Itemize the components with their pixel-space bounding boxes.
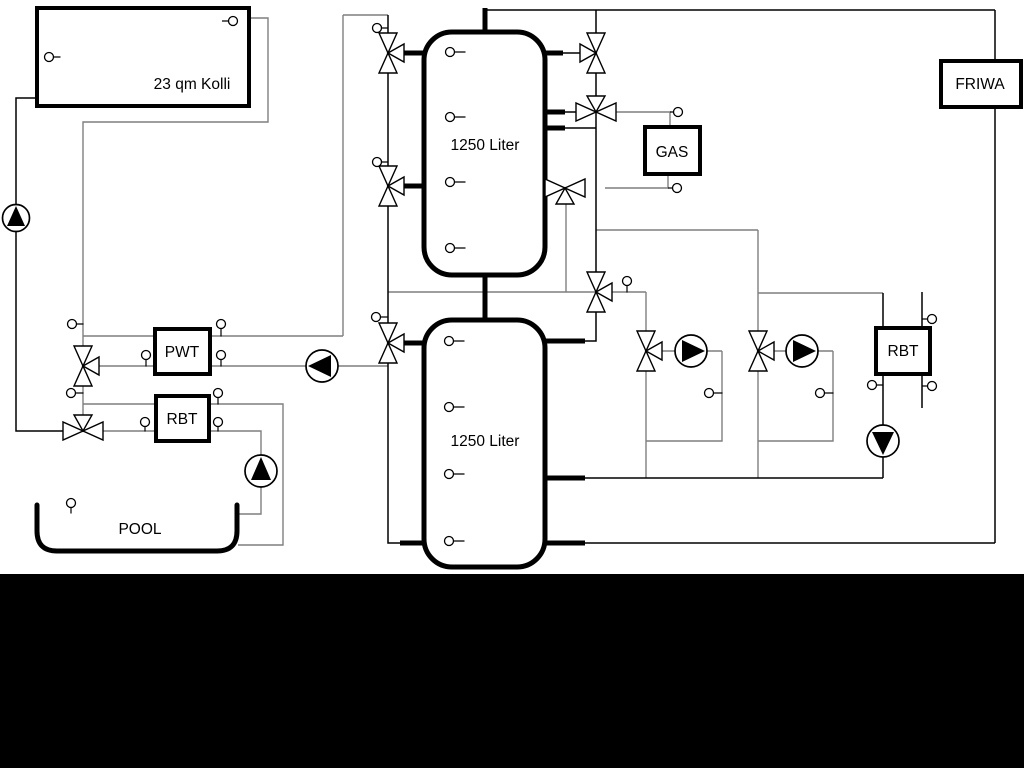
sensor-tank2-1-icon [445,337,454,346]
sensor-rbt-left-mid-icon [141,418,150,427]
rbt-right-heat-exchanger: RBT [876,328,930,374]
solar-collector-label: 23 qm Kolli [154,76,231,93]
pwt-label: PWT [165,344,200,361]
pump-pwt-icon [306,350,338,382]
rbt-right-label: RBT [888,343,920,360]
diagram-canvas: 23 qm Kolli 1250 Liter 1250 Liter GAS FR… [0,0,1024,768]
buffer-tank-top-label: 1250 Liter [451,137,520,154]
sensor-branch2-icon [816,389,825,398]
sensor-pwt-in-icon [68,320,77,329]
friwa-module: FRIWA [941,61,1021,107]
sensor-rbt-right-top-icon [928,315,937,324]
sensor-pwt-out-bottom-icon [217,351,226,360]
bottom-black-bar [0,574,1024,768]
sensor-manifold-mid-icon [373,158,382,167]
sensor-rbt-left-out-top-icon [214,389,223,398]
sensor-gas-return-icon [673,184,682,193]
sensor-manifold-top-icon [373,24,382,33]
sensor-collector-left-icon [45,53,54,62]
pool-label: POOL [118,521,161,538]
pump-pool-icon [245,455,277,487]
sensor-tank2-3-icon [445,470,454,479]
gas-boiler-label: GAS [656,144,689,161]
pump-rbt-right-icon [867,425,899,457]
sensor-rbt-right-bottom-icon [928,382,937,391]
sensor-branch1-icon [705,389,714,398]
sensor-manifold-low-icon [372,313,381,322]
sensor-rbt-left-in-icon [67,389,76,398]
buffer-tank-top: 1250 Liter [424,32,545,275]
sensor-rbt-left-out-bottom-icon [214,418,223,427]
rbt-left-label: RBT [167,411,199,428]
rbt-left-heat-exchanger: RBT [156,396,209,441]
pump-collector-icon [3,205,30,232]
pump-branch2-icon [786,335,818,367]
sensor-gas-flow-icon [674,108,683,117]
sensor-pool-icon [67,499,76,508]
sensor-tank1-1-icon [446,48,455,57]
sensor-tank1-3-icon [446,178,455,187]
sensor-rbt-right-primary-icon [868,381,877,390]
sensor-tank1-4-icon [446,244,455,253]
buffer-tank-bottom: 1250 Liter [424,320,545,567]
sensor-tank2-2-icon [445,403,454,412]
sensor-pwt-out-top-icon [217,320,226,329]
schematic-page: 23 qm Kolli 1250 Liter 1250 Liter GAS FR… [0,0,1024,768]
sensor-tank1-2-icon [446,113,455,122]
solar-collector: 23 qm Kolli [37,8,249,106]
friwa-label: FRIWA [955,76,1005,93]
sensor-pwt-left-icon [142,351,151,360]
pump-branch1-icon [675,335,707,367]
pwt-heat-exchanger: PWT [155,329,210,374]
sensor-collector-top-icon [229,17,238,26]
buffer-tank-bottom-label: 1250 Liter [451,433,520,450]
gas-boiler: GAS [645,127,700,174]
sensor-mid-header-icon [623,277,632,286]
sensor-tank2-4-icon [445,537,454,546]
